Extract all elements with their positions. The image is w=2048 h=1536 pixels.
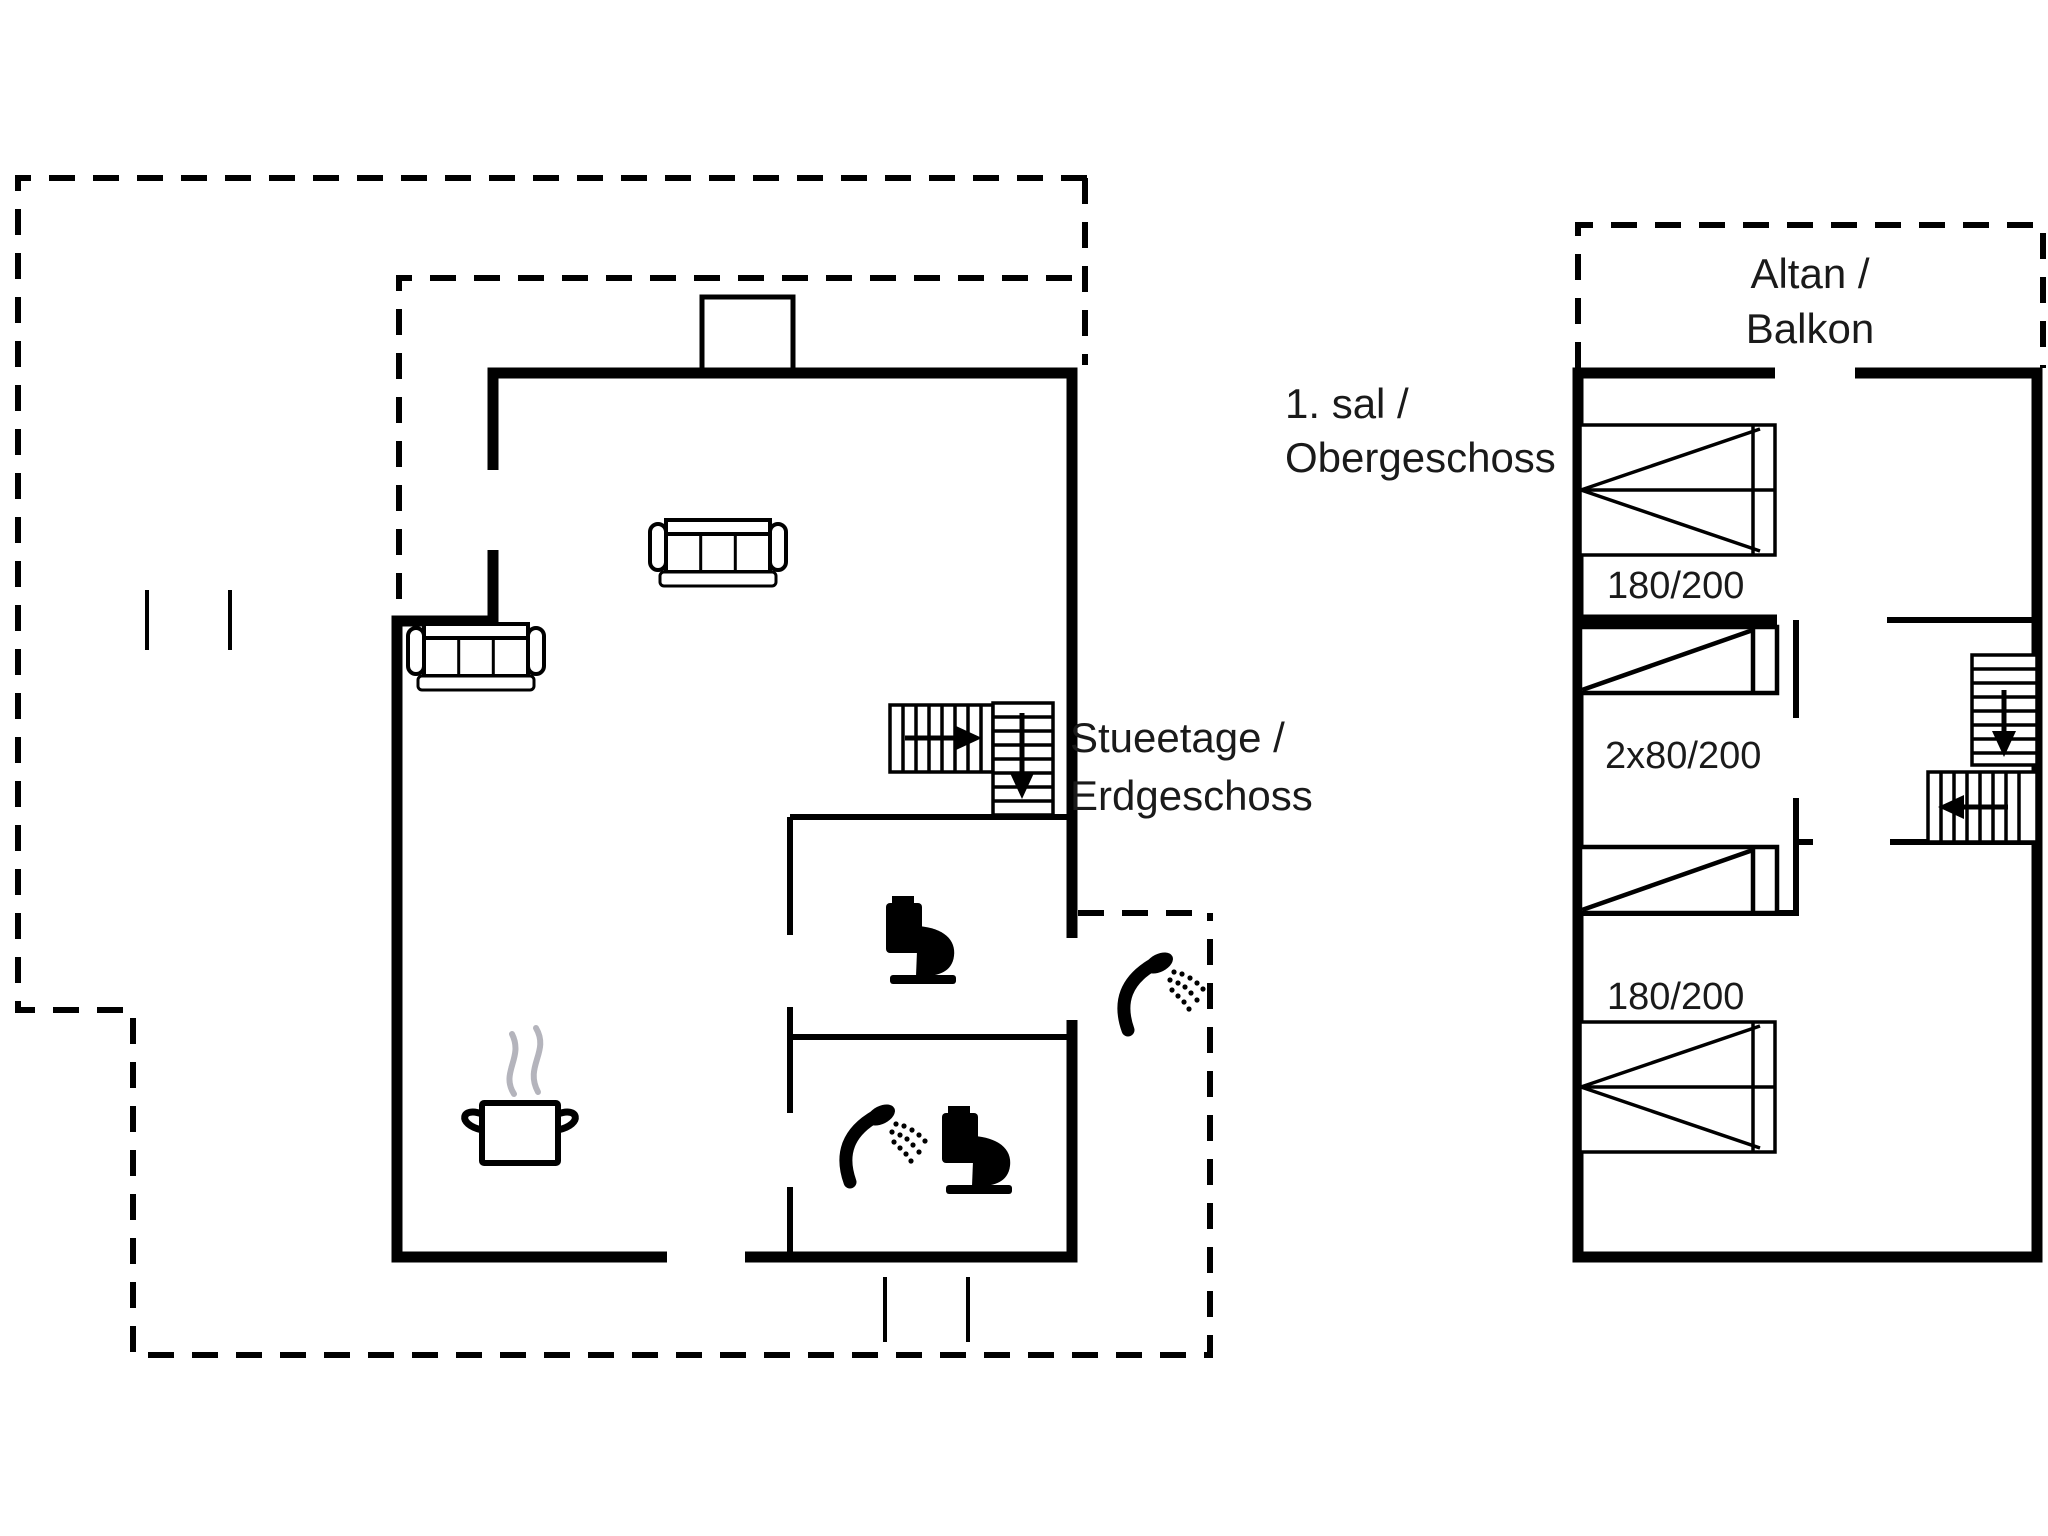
sofa-icon <box>650 520 786 586</box>
ground-floor-plan: Stueetage / Erdgeschoss <box>18 178 1313 1355</box>
chimney <box>702 297 793 373</box>
sofa-icon <box>408 624 544 690</box>
balcony-label-line1: Altan / <box>1750 250 1869 297</box>
upper-floor-plan: 180/200 2x80/200 180/200 Altan / Balkon … <box>1285 225 2043 1257</box>
shower-icon <box>846 1100 928 1182</box>
bed-size-label: 180/200 <box>1607 976 1744 1018</box>
ground-floor-label-line1: Stueetage / <box>1070 714 1285 761</box>
double-bed-icon <box>1580 1022 1775 1152</box>
double-bed-icon <box>1580 425 1775 555</box>
balcony-label-line2: Balkon <box>1746 305 1874 352</box>
ground-floor-label-line2: Erdgeschoss <box>1070 772 1313 819</box>
shower-icon <box>1124 948 1206 1030</box>
upper-floor-label-line1: 1. sal / <box>1285 380 1409 427</box>
single-bed-icon <box>1580 627 1777 693</box>
upper-floor-label-line2: Obergeschoss <box>1285 434 1556 481</box>
steam-icon <box>509 1028 540 1094</box>
interior-walls <box>790 817 1072 1252</box>
toilet-icon <box>886 896 956 984</box>
stairs-up-icon <box>890 703 1053 815</box>
floor-plan-drawing: Stueetage / Erdgeschoss 180/200 2x8 <box>0 0 2048 1536</box>
single-bed-icon <box>1580 847 1777 913</box>
bed-size-label: 180/200 <box>1607 565 1744 607</box>
stairs-down-icon <box>1928 655 2037 842</box>
toilet-icon <box>942 1106 1012 1194</box>
cooking-pot-icon <box>465 1028 576 1163</box>
bed-size-label: 2x80/200 <box>1605 735 1761 777</box>
